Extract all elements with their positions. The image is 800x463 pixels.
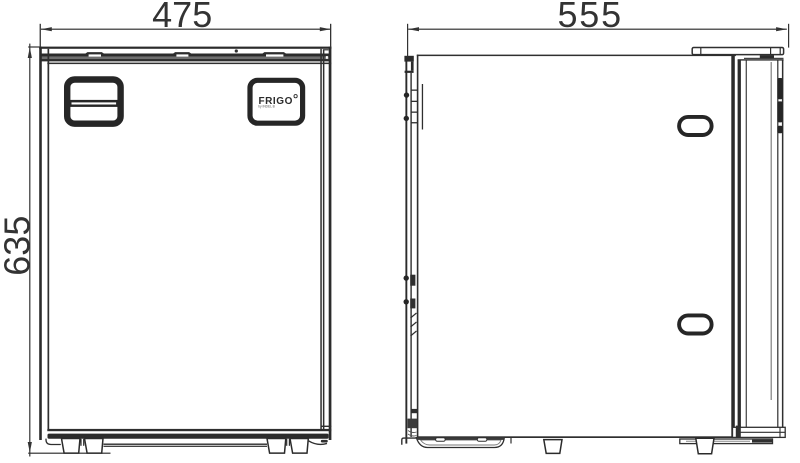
svg-text:635: 635 [0, 216, 37, 276]
svg-text:475: 475 [152, 0, 212, 35]
svg-text:555: 555 [557, 0, 622, 35]
svg-text:by INDEL B: by INDEL B [258, 104, 275, 108]
